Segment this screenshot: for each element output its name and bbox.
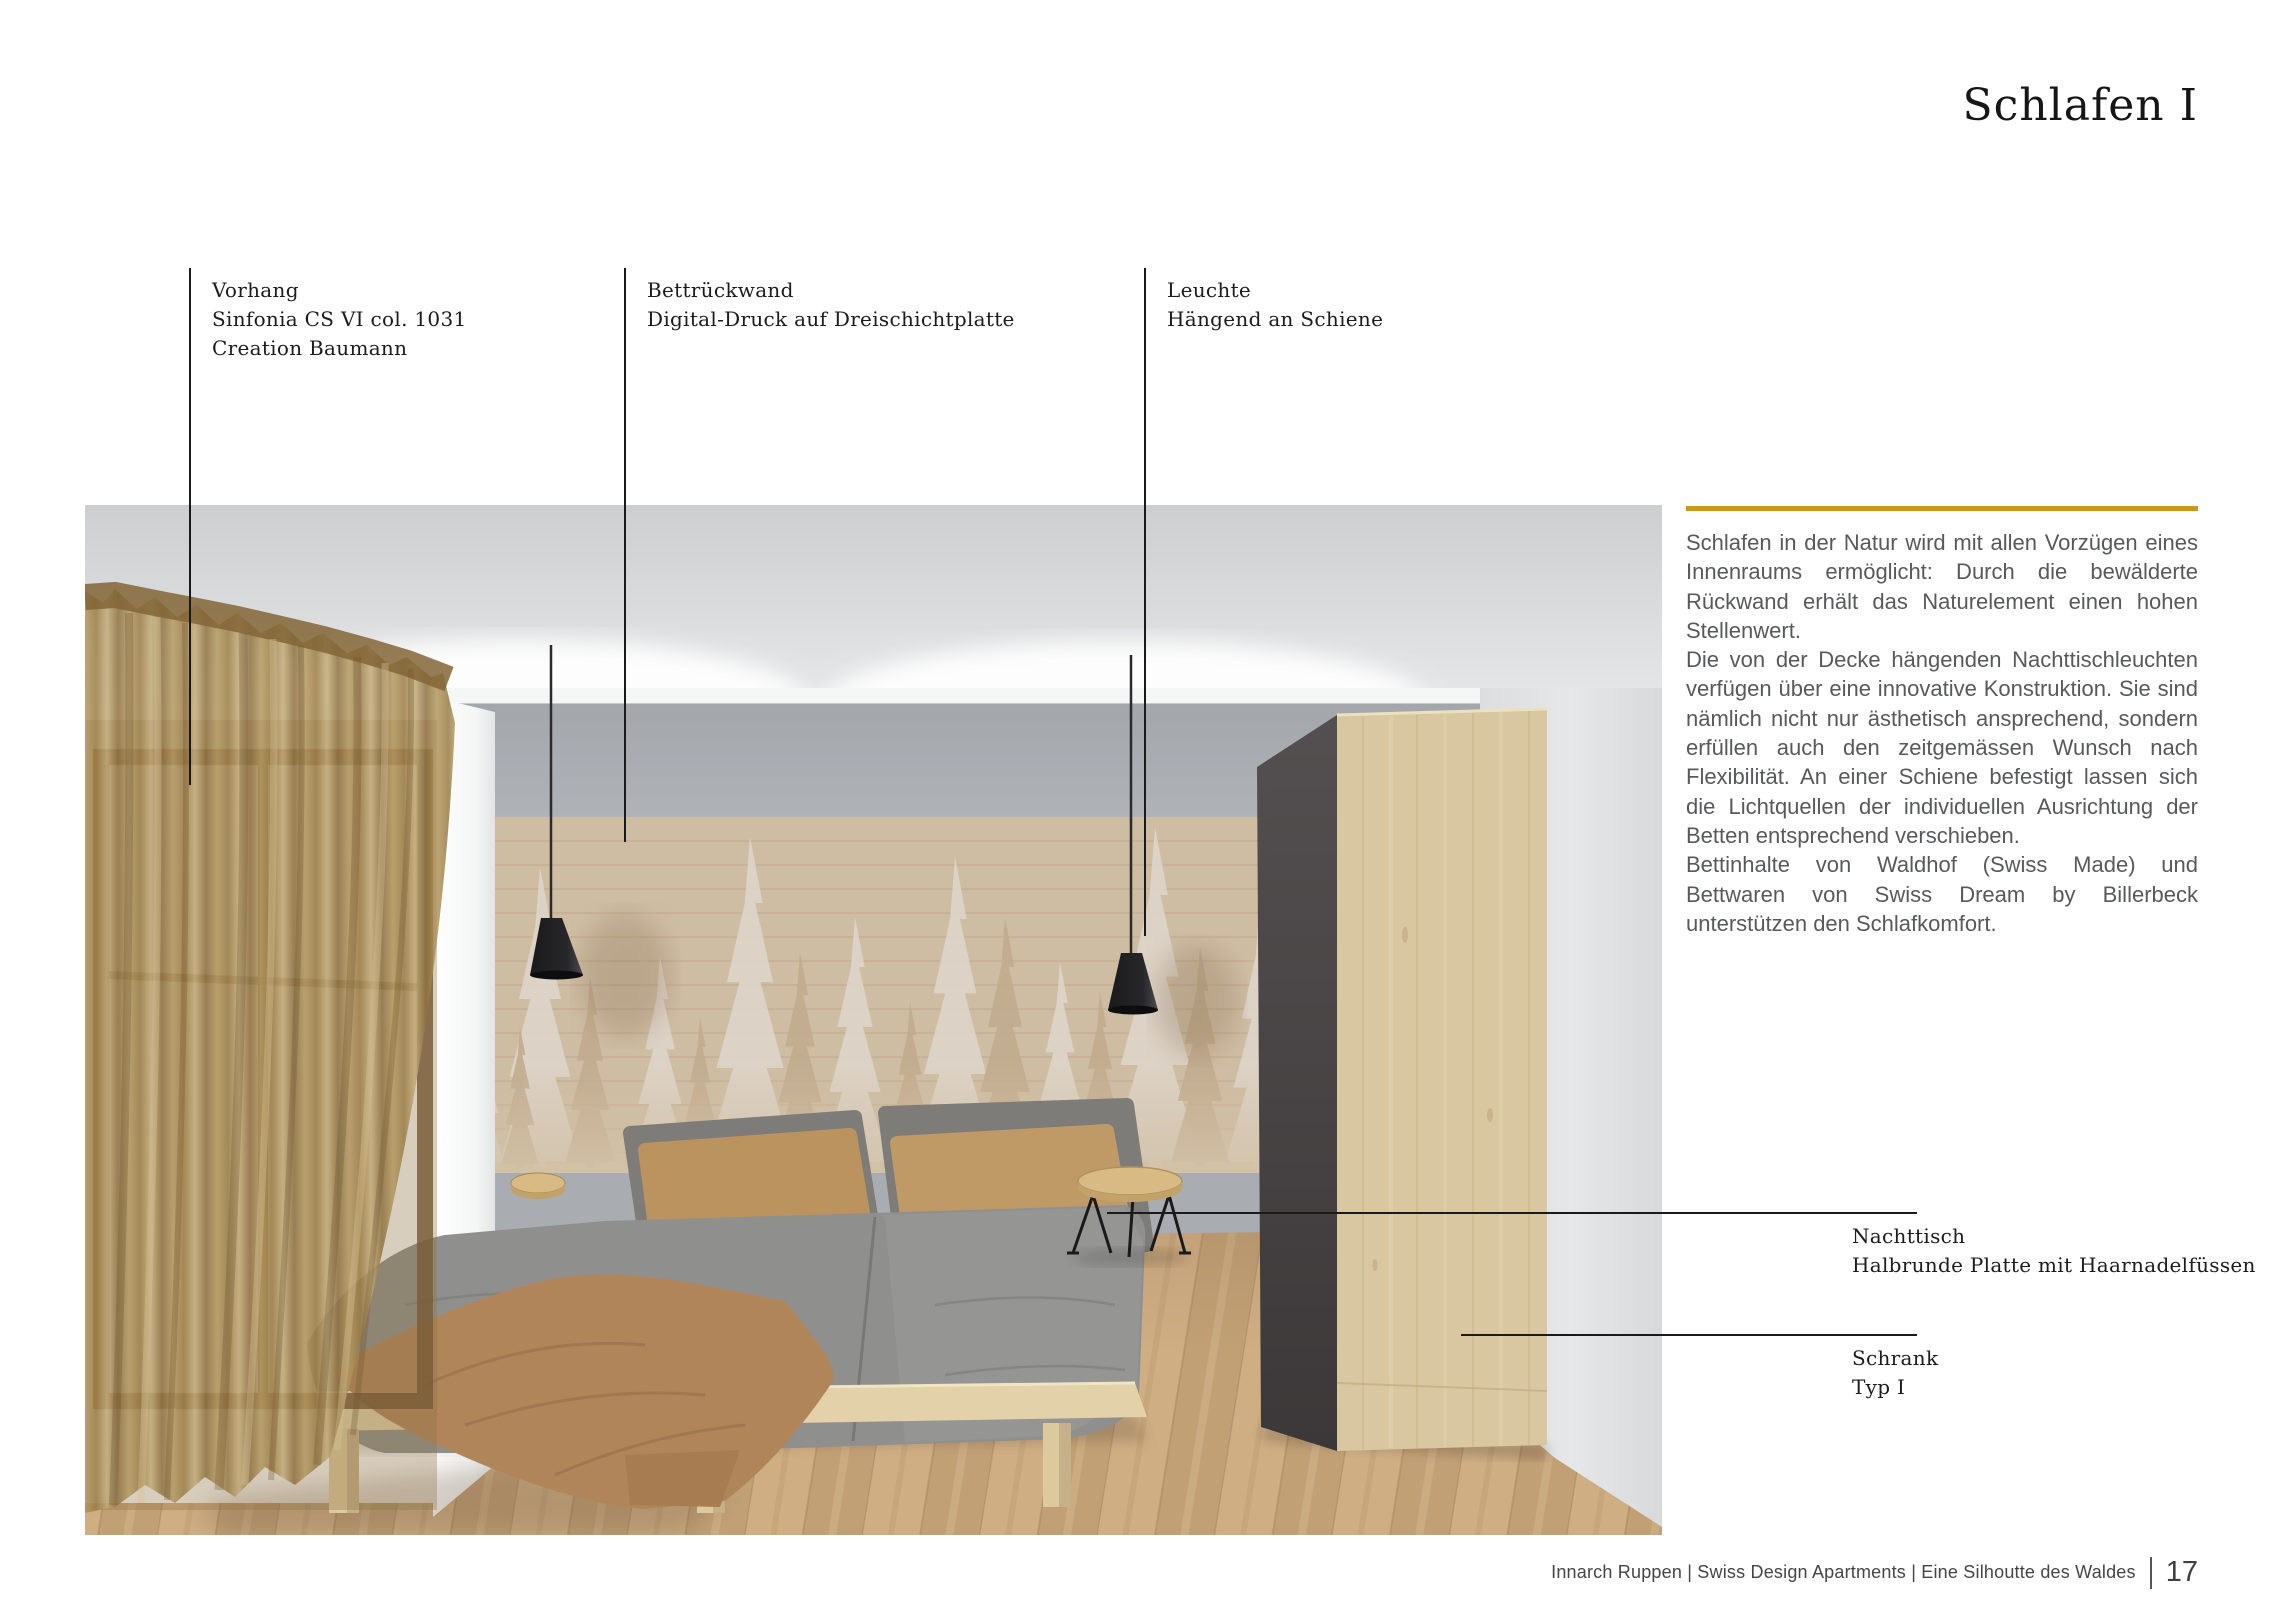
paragraph: Bettinhalte von Waldhof (Swiss Made) und… (1686, 850, 2198, 938)
leader-line-vorhang (189, 268, 191, 785)
page-number: 17 (2166, 1556, 2198, 1589)
bedroom-rendering-svg (85, 505, 1662, 1535)
label-line: Schrank (1852, 1344, 1938, 1373)
wardrobe-dark-side (1257, 715, 1337, 1451)
label-line: Halbrunde Platte mit Haarnadelfüssen (1852, 1251, 2256, 1280)
soffit-beam (437, 688, 1480, 704)
leader-line-schrank (1461, 1334, 1917, 1336)
label-line: Digital-Druck auf Dreischichtplatte (647, 305, 1015, 334)
annotation-vorhang: Vorhang Sinfonia CS VI col. 1031 Creatio… (212, 276, 467, 363)
footer-divider (2150, 1557, 2152, 1589)
annotation-leuchte: Leuchte Hängend an Schiene (1167, 276, 1383, 334)
label-line: Leuchte (1167, 276, 1383, 305)
leader-line-nachttisch (1107, 1212, 1917, 1214)
leader-line-leuchte (1144, 268, 1146, 936)
label-line: Vorhang (212, 276, 467, 305)
wardrobe (1257, 709, 1547, 1459)
paragraph: Die von der Decke hängenden Nachttischle… (1686, 645, 2198, 850)
annotation-schrank: Schrank Typ I (1852, 1344, 1938, 1402)
accent-rule (1686, 506, 2198, 511)
wardrobe-front (1337, 709, 1547, 1451)
label-line: Typ I (1852, 1373, 1938, 1402)
description-text: Schlafen in der Natur wird mit allen Vor… (1686, 528, 2198, 938)
label-line: Creation Baumann (212, 334, 467, 363)
bedroom-rendering (85, 505, 1662, 1535)
page: { "page": { "title": "Schlafen I", "acce… (0, 0, 2282, 1614)
pendant-shadow-left (579, 913, 671, 1037)
label-line: Hängend an Schiene (1167, 305, 1383, 334)
footer-credit: Innarch Ruppen | Swiss Design Apartments… (1551, 1562, 2136, 1583)
curtain (85, 589, 455, 1513)
pendant-shadow-right (1155, 944, 1239, 1056)
footer: Innarch Ruppen | Swiss Design Apartments… (1551, 1556, 2198, 1589)
label-line: Sinfonia CS VI col. 1031 (212, 305, 467, 334)
label-line: Nachttisch (1852, 1222, 2256, 1251)
paragraph: Schlafen in der Natur wird mit allen Vor… (1686, 528, 2198, 645)
nightstand-left (511, 1173, 565, 1199)
label-line: Bettrückwand (647, 276, 1015, 305)
leader-line-bettrueckwand (624, 268, 626, 842)
page-title: Schlafen I (1963, 80, 2198, 131)
annotation-bettrueckwand: Bettrückwand Digital-Druck auf Dreischic… (647, 276, 1015, 334)
annotation-nachttisch: Nachttisch Halbrunde Platte mit Haarnade… (1852, 1222, 2256, 1280)
